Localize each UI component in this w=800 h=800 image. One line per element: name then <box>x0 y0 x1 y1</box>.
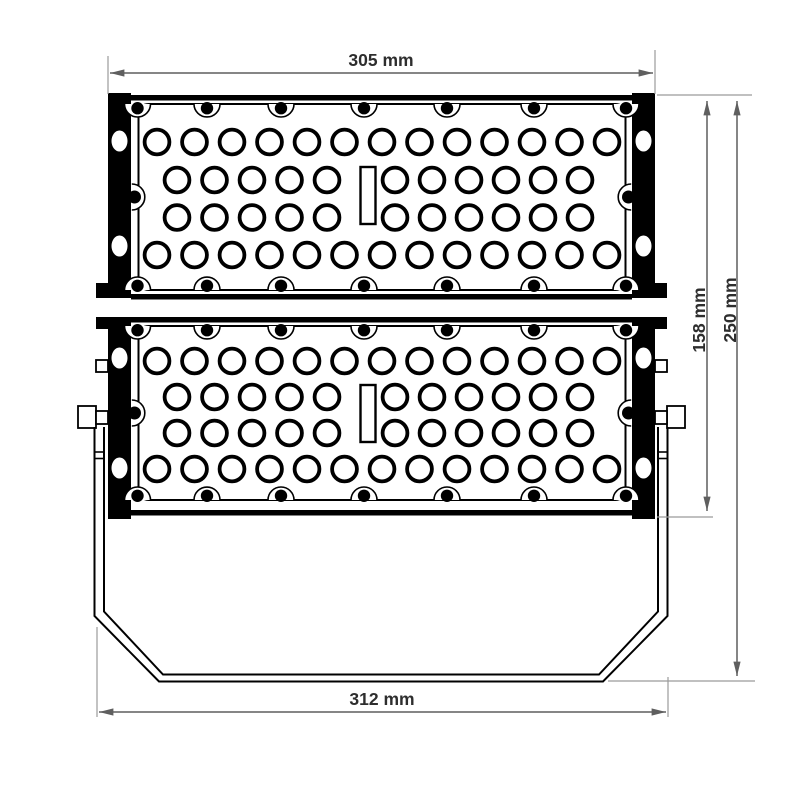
lens-hole <box>407 243 432 268</box>
rail-slot <box>112 348 128 369</box>
dimension-label: 305 mm <box>348 50 413 70</box>
screw-dot <box>528 324 540 336</box>
lens-hole <box>557 130 582 155</box>
screw-dot <box>441 324 453 336</box>
screw-dot <box>441 102 453 114</box>
lens-hole <box>520 349 545 374</box>
center-slot <box>361 385 376 442</box>
technical-drawing-page: 305 mm 158 mm 250 mm 312 mm <box>0 0 800 800</box>
lens-hole <box>165 205 190 230</box>
screw-dot <box>128 407 141 420</box>
lens-hole <box>220 243 245 268</box>
lens-hole <box>202 421 227 446</box>
lens-hole <box>568 385 593 410</box>
lens-hole <box>220 130 245 155</box>
screw-dot <box>275 280 287 292</box>
lens-hole <box>202 205 227 230</box>
rail-slot <box>636 458 652 479</box>
right-pivot-washer <box>655 411 667 424</box>
lens-hole <box>315 168 340 193</box>
lens-hole <box>407 457 432 482</box>
lens-hole <box>445 243 470 268</box>
lens-hole <box>295 130 320 155</box>
screw-dot <box>201 324 213 336</box>
screw-dot <box>620 280 632 292</box>
lens-hole <box>295 349 320 374</box>
dimension-label: 312 mm <box>349 689 414 709</box>
lens-hole <box>315 421 340 446</box>
lens-hole <box>494 421 519 446</box>
lens-hole <box>240 168 265 193</box>
lens-hole <box>520 243 545 268</box>
lens-hole <box>257 349 282 374</box>
rail-slot <box>636 348 652 369</box>
lens-hole <box>568 168 593 193</box>
left-pivot-washer <box>96 411 108 424</box>
module-frame-edge <box>131 294 632 300</box>
lens-hole <box>595 349 620 374</box>
lens-hole <box>520 457 545 482</box>
screw-dot <box>201 280 213 292</box>
rail-slot <box>112 236 128 257</box>
lens-hole <box>595 457 620 482</box>
dimension-label: 158 mm <box>689 287 709 352</box>
screw-dot <box>275 490 287 502</box>
lens-hole <box>182 130 207 155</box>
lens-hole <box>257 130 282 155</box>
lens-hole <box>182 349 207 374</box>
lens-hole <box>257 457 282 482</box>
lens-hole <box>145 349 170 374</box>
lens-hole <box>445 457 470 482</box>
lens-hole <box>595 130 620 155</box>
module-frame-edge <box>131 317 632 323</box>
lens-hole <box>482 130 507 155</box>
lens-hole <box>531 421 556 446</box>
lens-hole <box>165 168 190 193</box>
lens-hole <box>277 205 302 230</box>
lens-hole <box>445 349 470 374</box>
lens-hole <box>557 243 582 268</box>
screw-dot <box>528 490 540 502</box>
lens-hole <box>383 168 408 193</box>
lens-hole <box>332 457 357 482</box>
dim-width-top: 305 mm <box>108 50 655 94</box>
lens-hole <box>220 349 245 374</box>
lens-hole <box>370 457 395 482</box>
lens-hole <box>240 421 265 446</box>
lens-hole <box>332 130 357 155</box>
lens-hole <box>482 243 507 268</box>
lens-hole <box>457 168 482 193</box>
module-frame-edge <box>131 95 632 101</box>
left-pivot-knob <box>78 406 96 428</box>
lens-hole <box>370 243 395 268</box>
lens-hole <box>531 205 556 230</box>
lens-hole <box>557 457 582 482</box>
lens-hole <box>165 385 190 410</box>
screw-dot <box>131 280 143 292</box>
lens-hole <box>370 130 395 155</box>
right-side-tab <box>655 360 667 372</box>
screw-dot <box>441 490 453 502</box>
screw-dot <box>201 490 213 502</box>
dim-width-bracket: 312 mm <box>97 627 668 717</box>
lens-hole <box>383 205 408 230</box>
lens-hole <box>295 457 320 482</box>
screw-dot <box>358 280 370 292</box>
screw-dot <box>441 280 453 292</box>
screw-dot <box>622 191 635 204</box>
lens-hole <box>332 349 357 374</box>
lens-hole <box>520 130 545 155</box>
screw-dot <box>528 102 540 114</box>
lens-hole <box>494 205 519 230</box>
right-pivot-knob <box>667 406 685 428</box>
center-slot <box>361 167 376 224</box>
module-gap-band <box>88 298 675 317</box>
screw-dot <box>528 280 540 292</box>
rail-slot <box>112 458 128 479</box>
lens-hole <box>595 243 620 268</box>
lens-hole <box>494 168 519 193</box>
lens-hole <box>182 243 207 268</box>
lens-hole <box>277 385 302 410</box>
lens-hole <box>420 385 445 410</box>
rail-slot <box>636 131 652 152</box>
screw-dot <box>622 407 635 420</box>
screw-dot <box>358 490 370 502</box>
lens-hole <box>420 205 445 230</box>
lens-hole <box>531 385 556 410</box>
lens-hole <box>457 421 482 446</box>
lens-hole <box>494 385 519 410</box>
lens-hole <box>383 385 408 410</box>
lens-hole <box>407 349 432 374</box>
rail-slot <box>112 131 128 152</box>
lens-hole <box>332 243 357 268</box>
screw-dot <box>128 191 141 204</box>
lens-hole <box>182 457 207 482</box>
lens-hole <box>407 130 432 155</box>
screw-dot <box>275 324 287 336</box>
lens-hole <box>165 421 190 446</box>
lens-hole <box>557 349 582 374</box>
lens-hole <box>295 243 320 268</box>
lens-hole <box>315 385 340 410</box>
lens-hole <box>457 385 482 410</box>
lens-hole <box>240 205 265 230</box>
screw-dot <box>131 490 143 502</box>
screw-dot <box>131 102 143 114</box>
lens-hole <box>202 168 227 193</box>
lens-hole <box>420 168 445 193</box>
dimension-label: 250 mm <box>720 277 740 342</box>
floodlight-technical-drawing: 305 mm 158 mm 250 mm 312 mm <box>0 0 800 800</box>
lens-hole <box>482 457 507 482</box>
lens-hole <box>277 168 302 193</box>
lens-hole <box>240 385 265 410</box>
lens-hole <box>568 205 593 230</box>
screw-dot <box>620 490 632 502</box>
screw-dot <box>275 102 287 114</box>
screw-dot <box>201 102 213 114</box>
floodlight-fixture <box>78 93 685 682</box>
screw-dot <box>131 324 143 336</box>
lens-hole <box>277 421 302 446</box>
left-side-tab <box>96 360 108 372</box>
lens-hole <box>531 168 556 193</box>
screw-dot <box>358 102 370 114</box>
rail-slot <box>636 236 652 257</box>
lens-hole <box>482 349 507 374</box>
screw-dot <box>620 102 632 114</box>
screw-dot <box>358 324 370 336</box>
lens-hole <box>315 205 340 230</box>
lens-hole <box>383 421 408 446</box>
lens-hole <box>202 385 227 410</box>
screw-dot <box>620 324 632 336</box>
lens-hole <box>568 421 593 446</box>
lens-hole <box>220 457 245 482</box>
lens-hole <box>370 349 395 374</box>
lens-hole <box>145 457 170 482</box>
lens-hole <box>445 130 470 155</box>
lens-hole <box>145 243 170 268</box>
module-frame-edge <box>131 510 632 516</box>
lens-hole <box>457 205 482 230</box>
lens-hole <box>257 243 282 268</box>
lens-hole <box>145 130 170 155</box>
lens-hole <box>420 421 445 446</box>
